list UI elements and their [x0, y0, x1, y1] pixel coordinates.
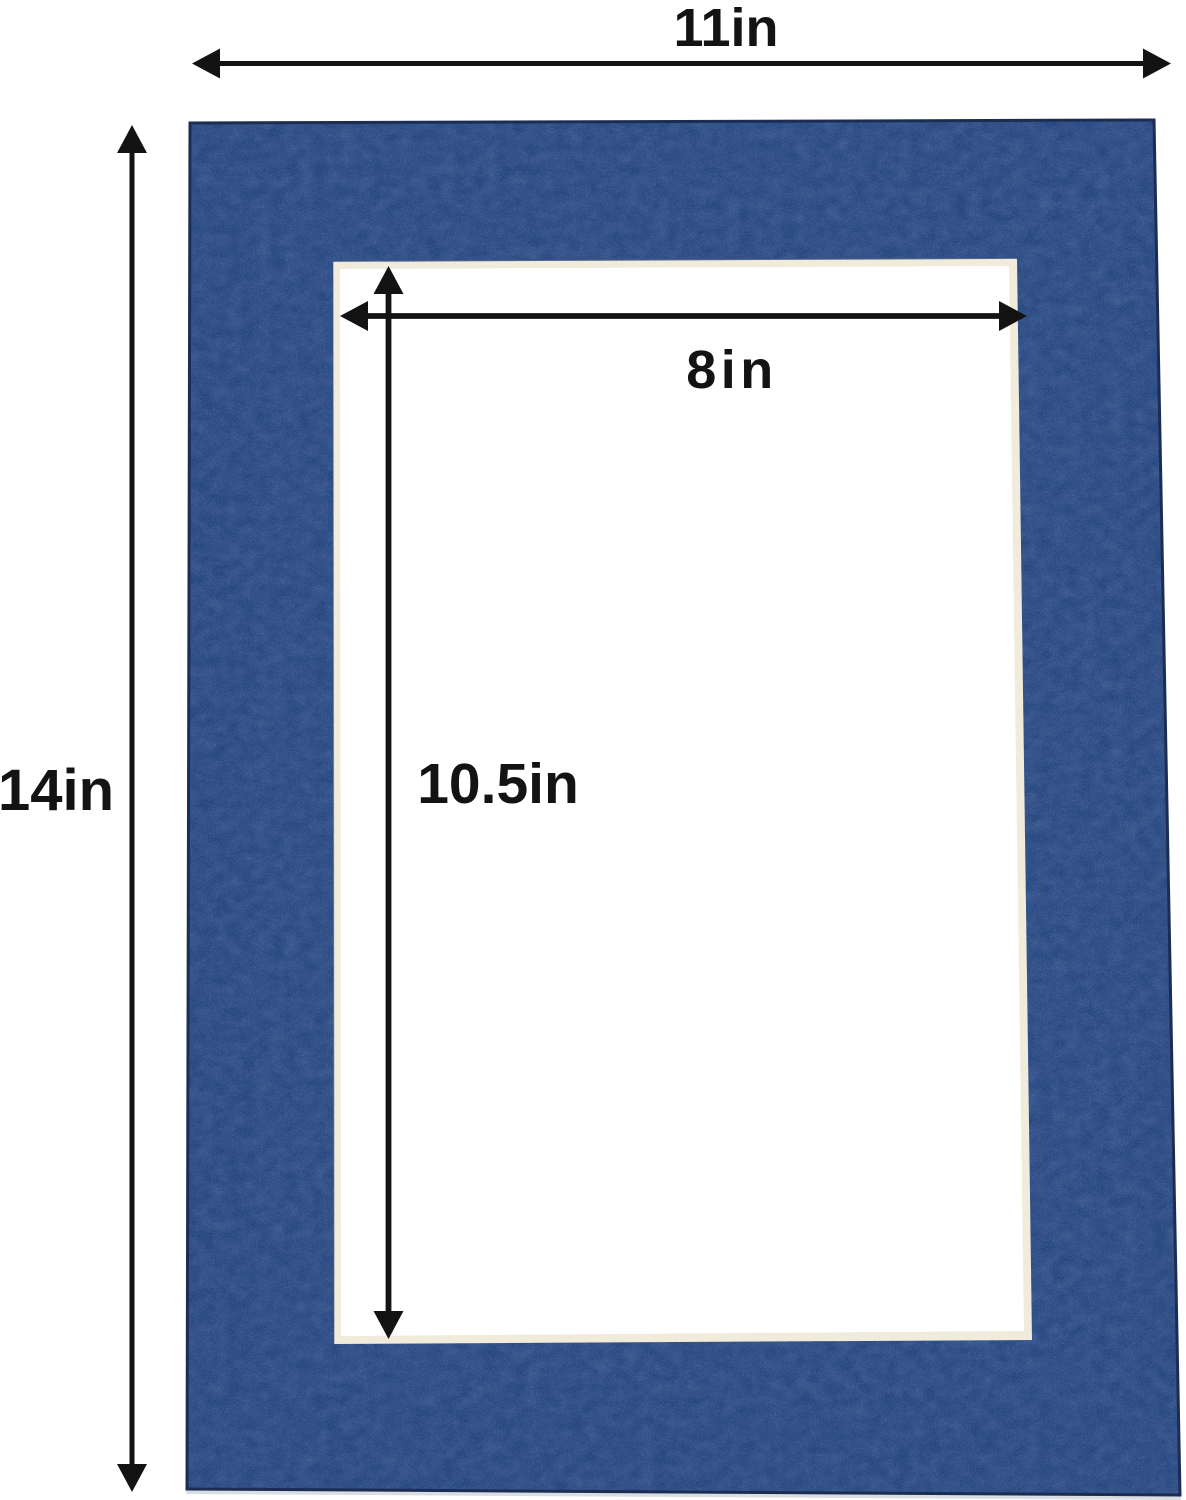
svg-text:14in: 14in: [0, 758, 114, 823]
svg-text:8in: 8in: [686, 340, 778, 400]
svg-text:10.5in: 10.5in: [417, 752, 579, 816]
svg-text:11in: 11in: [673, 0, 778, 58]
